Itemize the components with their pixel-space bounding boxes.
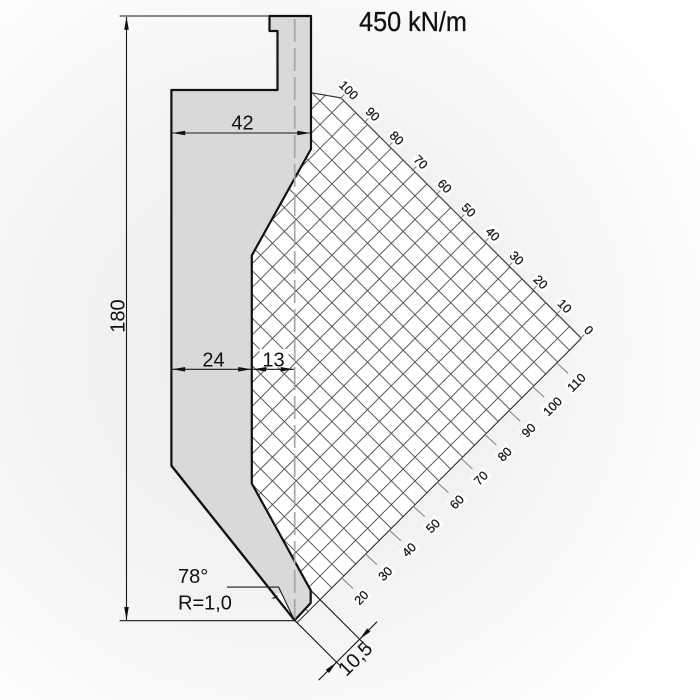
svg-text:42: 42 (231, 113, 253, 135)
svg-text:R=1,0: R=1,0 (178, 593, 232, 615)
svg-text:180: 180 (108, 299, 130, 332)
svg-text:24: 24 (202, 349, 224, 371)
svg-text:450 kN/m: 450 kN/m (359, 6, 467, 38)
svg-text:13: 13 (262, 349, 284, 371)
svg-text:78°: 78° (178, 566, 208, 588)
